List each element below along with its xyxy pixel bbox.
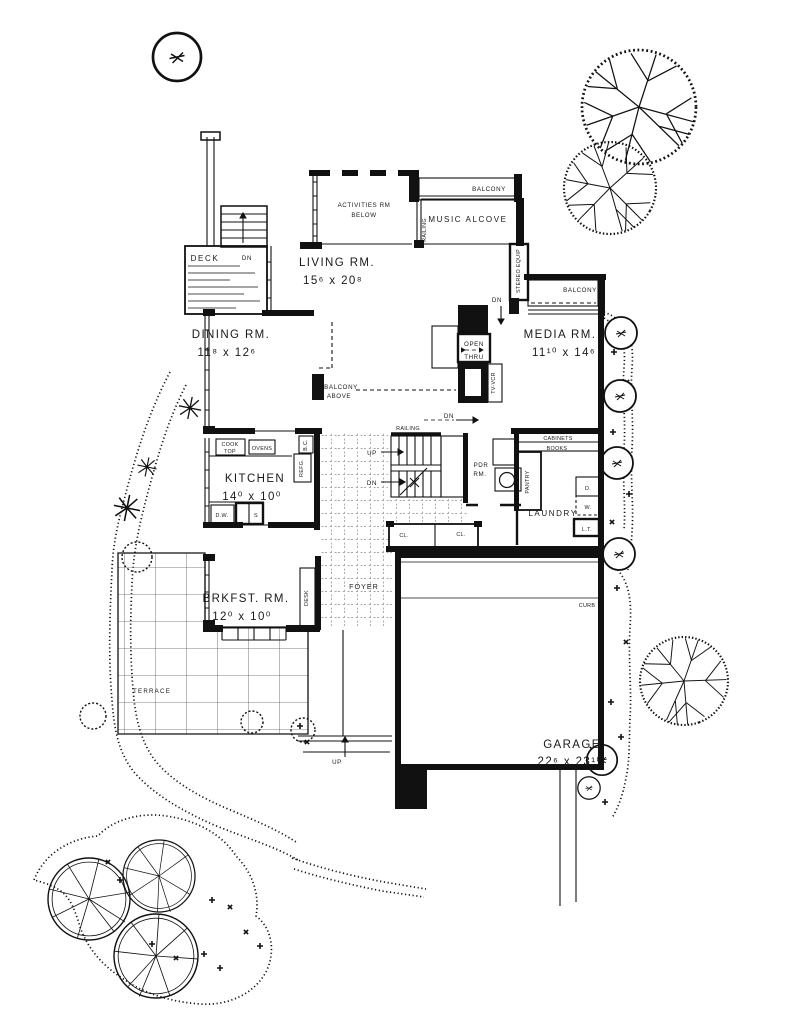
stairs-dn-label: DN xyxy=(367,480,377,487)
living-dining: LIVING RM. 15⁶ x 20⁸ DINING RM. 11⁸ x 12… xyxy=(192,246,456,434)
wall xyxy=(598,274,605,316)
shrub xyxy=(80,703,106,729)
wall xyxy=(203,522,243,528)
pdr-toilet xyxy=(500,473,515,488)
foyer-label: FOYER xyxy=(349,582,379,591)
spoke-tree xyxy=(107,907,204,1004)
tv-vcr-label: TV-VCR xyxy=(491,372,497,394)
garage: CURB GARAGE 22⁶ x 23¹⁰ xyxy=(395,552,604,770)
wall xyxy=(598,314,604,434)
media-dims: 11¹⁰ x 14⁶ xyxy=(532,347,596,359)
small-tree xyxy=(605,317,637,349)
music-alcove-label: MUSIC ALCOVE xyxy=(428,215,507,224)
wall xyxy=(314,433,320,530)
railing-top-label: RAILING xyxy=(422,218,428,242)
media-dn-label: DN xyxy=(492,297,502,304)
wall xyxy=(203,309,215,316)
balcony-media-label: BALCONY xyxy=(563,287,597,294)
deck-boards xyxy=(188,266,260,308)
large-tree xyxy=(582,50,696,164)
wall xyxy=(386,521,394,527)
desk-label: DESK xyxy=(304,590,310,606)
terrace: TERRACE xyxy=(118,553,308,734)
hedge-bottom-outer xyxy=(292,858,426,889)
open-thru-label-2: THRU xyxy=(464,354,484,361)
wall xyxy=(312,374,324,400)
deck-label: DECK xyxy=(191,254,220,263)
wall xyxy=(598,552,604,770)
driveway-edges xyxy=(560,770,576,906)
wall xyxy=(268,522,320,528)
wall xyxy=(514,174,522,202)
wall xyxy=(300,242,322,249)
open-thru-label-1: OPEN xyxy=(464,341,484,348)
cabinets-label: CABINETS xyxy=(543,436,572,442)
ovens-label: OVENS xyxy=(252,446,272,452)
kitchen-label: KITCHEN xyxy=(225,473,285,485)
wall xyxy=(474,521,482,527)
garage-label: GARAGE xyxy=(543,739,601,751)
planting-band-right-upper xyxy=(604,312,633,570)
washer-label: W. xyxy=(585,505,592,511)
wall xyxy=(203,554,215,561)
media-balcony-rail xyxy=(528,310,598,314)
closet1-label: CL. xyxy=(399,533,408,539)
pantry-label: PANTRY xyxy=(525,470,531,493)
wall xyxy=(203,428,255,434)
wall xyxy=(516,198,524,246)
balcony-above-label-2: ABOVE xyxy=(327,393,351,400)
wall xyxy=(286,625,320,632)
walk-steps xyxy=(298,630,392,752)
hall-dn-label: DN xyxy=(444,413,454,420)
books-label: BOOKS xyxy=(547,446,568,452)
entry-planter xyxy=(395,764,427,809)
media-wing: BALCONY MEDIA RM. 11¹⁰ x 14⁶ DN OPEN THR… xyxy=(432,274,606,434)
planting-band-right-lower xyxy=(606,560,631,818)
brkfst-dims: 12⁰ x 10⁰ xyxy=(212,611,272,623)
plant-star xyxy=(138,458,157,477)
stereo-label: STEREO EQUIP xyxy=(516,249,522,293)
deck: DECK DN xyxy=(185,132,267,314)
cooktop-label-1: COOK xyxy=(221,442,238,448)
wall xyxy=(509,298,519,314)
wall xyxy=(463,433,468,503)
activities-label-2: BELOW xyxy=(351,212,376,219)
terrace-label: TERRACE xyxy=(133,688,171,695)
wall xyxy=(395,552,604,558)
hearth xyxy=(432,326,458,368)
large-tree xyxy=(628,625,741,738)
stairs-up-label: UP xyxy=(367,450,377,457)
balcony-top-label: BALCONY xyxy=(472,186,506,193)
deck-stair-treads xyxy=(221,214,267,238)
small-tree xyxy=(578,777,600,799)
front-walk: UP xyxy=(298,630,427,809)
living-dims: 15⁶ x 20⁸ xyxy=(303,275,363,287)
living-label: LIVING RM. xyxy=(299,257,375,269)
open-above-dashed xyxy=(319,322,332,368)
sink-label: S xyxy=(254,513,258,519)
spoke-tree xyxy=(48,858,130,940)
wall xyxy=(315,556,321,630)
pdr-label-1: PDR xyxy=(474,462,489,469)
shrub-mass-bottom-left xyxy=(34,815,271,1004)
terrace-paving xyxy=(118,553,308,734)
laundry-label: LAUNDRY xyxy=(528,509,577,518)
small-tree xyxy=(604,380,636,412)
small-tree xyxy=(603,538,635,570)
pdr-vanity xyxy=(493,439,515,465)
driveway xyxy=(560,770,576,906)
plant-star xyxy=(179,397,201,419)
railing-stairs-label: RAILING xyxy=(396,426,420,432)
wall xyxy=(395,552,401,770)
pdr-label-2: RM. xyxy=(473,471,486,478)
walk-up-label: UP xyxy=(332,759,342,766)
dining-label: DINING RM. xyxy=(192,329,271,341)
chimney-cap xyxy=(201,132,220,140)
kitchen-window-wall xyxy=(205,438,209,524)
dining-dims: 11⁸ x 12⁶ xyxy=(197,347,256,359)
kitchen-dims: 14⁰ x 10⁰ xyxy=(222,491,282,503)
deck-dn-label: DN xyxy=(242,255,252,262)
garage-dims: 22⁶ x 23¹⁰ xyxy=(538,756,603,768)
large-tree xyxy=(547,125,673,251)
brkfst-label: BRKFST. RM. xyxy=(203,593,290,605)
gallery-hall: FOYER RAILING UP DN DN PDR RM. CL. CL. xyxy=(320,413,521,628)
media-label: MEDIA RM. xyxy=(524,329,597,341)
laundry-tub-label: L.T. xyxy=(582,527,592,533)
deck-stairs xyxy=(221,206,267,247)
hedge-bottom-inner xyxy=(294,869,424,897)
kitchen: COOK TOP OVENS KITCHEN 14⁰ x 10⁰ D.W. S … xyxy=(203,428,322,530)
flue-void xyxy=(465,369,481,396)
small-tree xyxy=(601,447,633,479)
wall xyxy=(262,310,314,316)
closet2-label: CL. xyxy=(456,532,465,538)
chimney-flue xyxy=(207,137,214,246)
cooktop-label-2: TOP xyxy=(224,449,236,455)
bc-label: B.C. xyxy=(303,439,309,451)
activities-label-1: ACTIVITIES RM xyxy=(338,202,391,209)
refg-label: REFG. xyxy=(299,459,305,477)
wall xyxy=(203,625,223,632)
fireplace-mass xyxy=(458,305,488,333)
plant-star xyxy=(114,495,140,521)
dryer-label: D. xyxy=(585,486,591,492)
wall xyxy=(386,546,604,552)
balcony-above-label-1: BALCONY xyxy=(324,384,358,391)
wall xyxy=(409,170,419,202)
curb-label: CURB xyxy=(579,603,596,609)
floor-plan-sheet: TERRACE UP DECK DN ACTIVITIES RM BELOW B… xyxy=(0,0,800,1020)
dw-label: D.W. xyxy=(216,513,229,519)
window-wall xyxy=(313,172,317,243)
wall xyxy=(524,274,606,280)
small-tree xyxy=(153,33,201,81)
floor-plan-drawing: TERRACE UP DECK DN ACTIVITIES RM BELOW B… xyxy=(0,0,800,1020)
